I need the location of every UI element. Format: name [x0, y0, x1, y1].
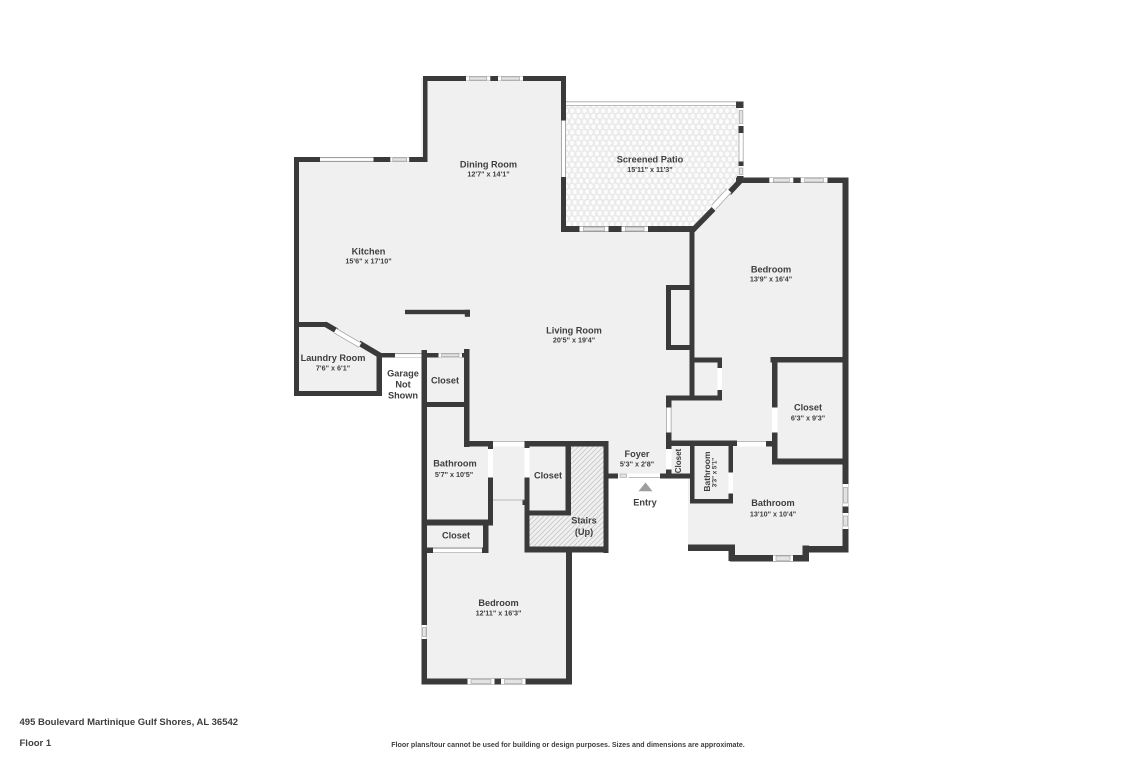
- svg-text:(Up): (Up): [575, 527, 593, 537]
- svg-text:Entry: Entry: [633, 498, 657, 508]
- svg-text:Stairs: Stairs: [571, 516, 597, 526]
- svg-text:15'11" x 11'3": 15'11" x 11'3": [627, 165, 672, 174]
- svg-text:Closet: Closet: [534, 471, 562, 481]
- svg-text:Living Room: Living Room: [546, 326, 602, 336]
- svg-text:Floor 1: Floor 1: [20, 738, 52, 749]
- svg-text:5'3" x 2'8": 5'3" x 2'8": [620, 459, 654, 468]
- svg-text:Garage: Garage: [387, 369, 419, 379]
- svg-text:495 Boulevard Martinique Gulf: 495 Boulevard Martinique Gulf Shores, AL…: [20, 717, 239, 728]
- svg-text:15'6" x 17'10": 15'6" x 17'10": [345, 257, 391, 266]
- svg-text:Not: Not: [395, 380, 410, 390]
- svg-text:Laundry Room: Laundry Room: [301, 353, 366, 363]
- svg-text:13'9" x 16'4": 13'9" x 16'4": [750, 275, 792, 284]
- svg-text:Bathroom: Bathroom: [751, 498, 794, 508]
- svg-text:6'3" x 9'3": 6'3" x 9'3": [791, 414, 825, 423]
- svg-text:Bathroom: Bathroom: [433, 459, 476, 469]
- svg-text:Closet: Closet: [794, 402, 822, 412]
- svg-text:Bedroom: Bedroom: [478, 598, 518, 608]
- svg-text:Closet: Closet: [674, 448, 683, 473]
- svg-text:3'3" x 5'1": 3'3" x 5'1": [711, 458, 718, 488]
- svg-text:Shown: Shown: [388, 391, 418, 401]
- svg-text:Bedroom: Bedroom: [751, 265, 791, 275]
- svg-text:20'5" x 19'4": 20'5" x 19'4": [553, 336, 595, 345]
- svg-text:Closet: Closet: [431, 376, 459, 386]
- svg-text:Dining Room: Dining Room: [460, 160, 517, 170]
- svg-text:Foyer: Foyer: [624, 449, 649, 459]
- svg-text:7'6" x 6'1": 7'6" x 6'1": [316, 364, 350, 373]
- svg-text:12'11" x 16'3": 12'11" x 16'3": [476, 608, 522, 617]
- svg-text:Screened Patio: Screened Patio: [617, 155, 684, 165]
- svg-text:Closet: Closet: [442, 531, 470, 541]
- svg-text:Kitchen: Kitchen: [352, 246, 386, 256]
- svg-text:Floor plans/tour cannot be use: Floor plans/tour cannot be used for buil…: [391, 741, 745, 749]
- svg-text:5'7" x 10'5": 5'7" x 10'5": [435, 470, 473, 479]
- svg-text:13'10" x 10'4": 13'10" x 10'4": [750, 509, 796, 518]
- svg-text:12'7" x 14'1": 12'7" x 14'1": [467, 170, 509, 179]
